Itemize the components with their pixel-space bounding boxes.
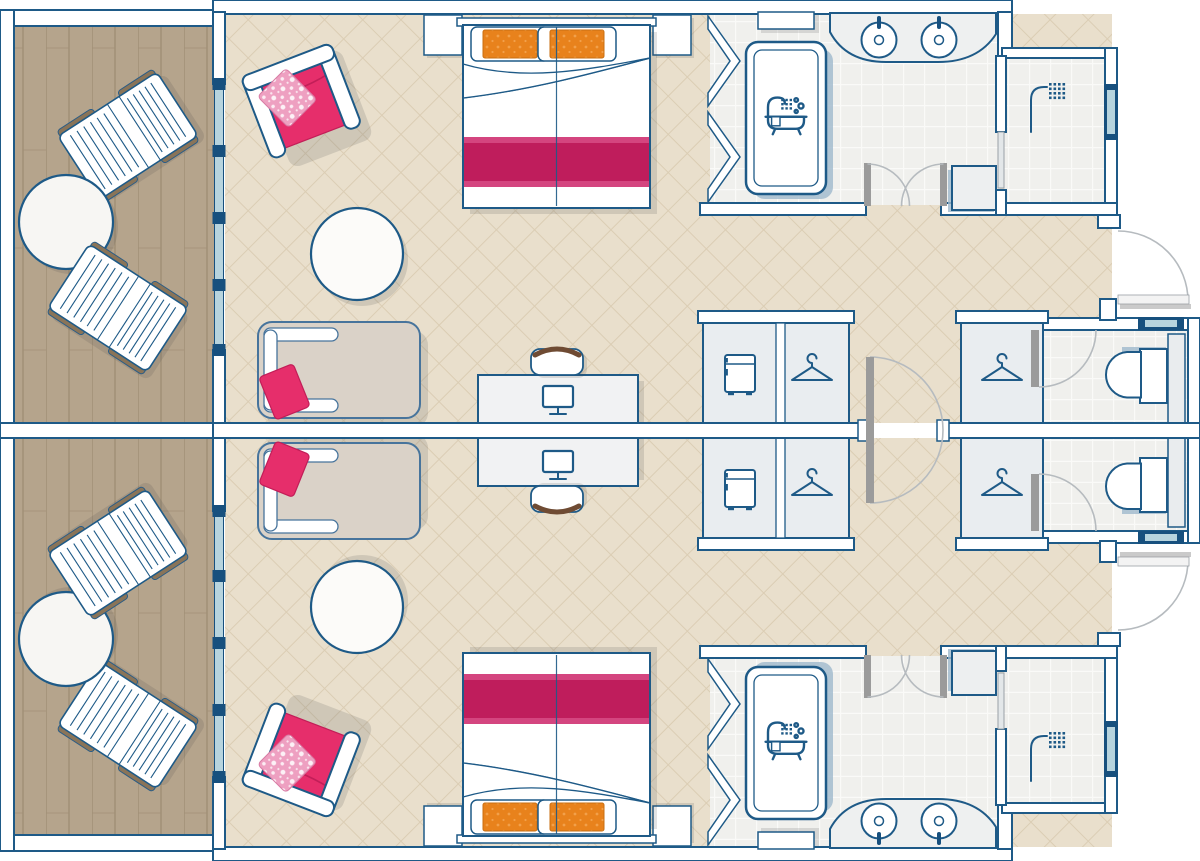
room-suite-top <box>0 0 1200 431</box>
balcony-divider-wall <box>0 423 225 438</box>
room-divider-wall-right <box>941 423 1200 438</box>
connecting-door-leaf <box>866 357 874 503</box>
room-divider-wall-left <box>213 423 866 438</box>
floor-plan: Floor plan of two mirrored connecting ho… <box>0 0 1200 861</box>
dividing-walls <box>0 420 1200 441</box>
floor-plan-canvas <box>0 0 1200 861</box>
